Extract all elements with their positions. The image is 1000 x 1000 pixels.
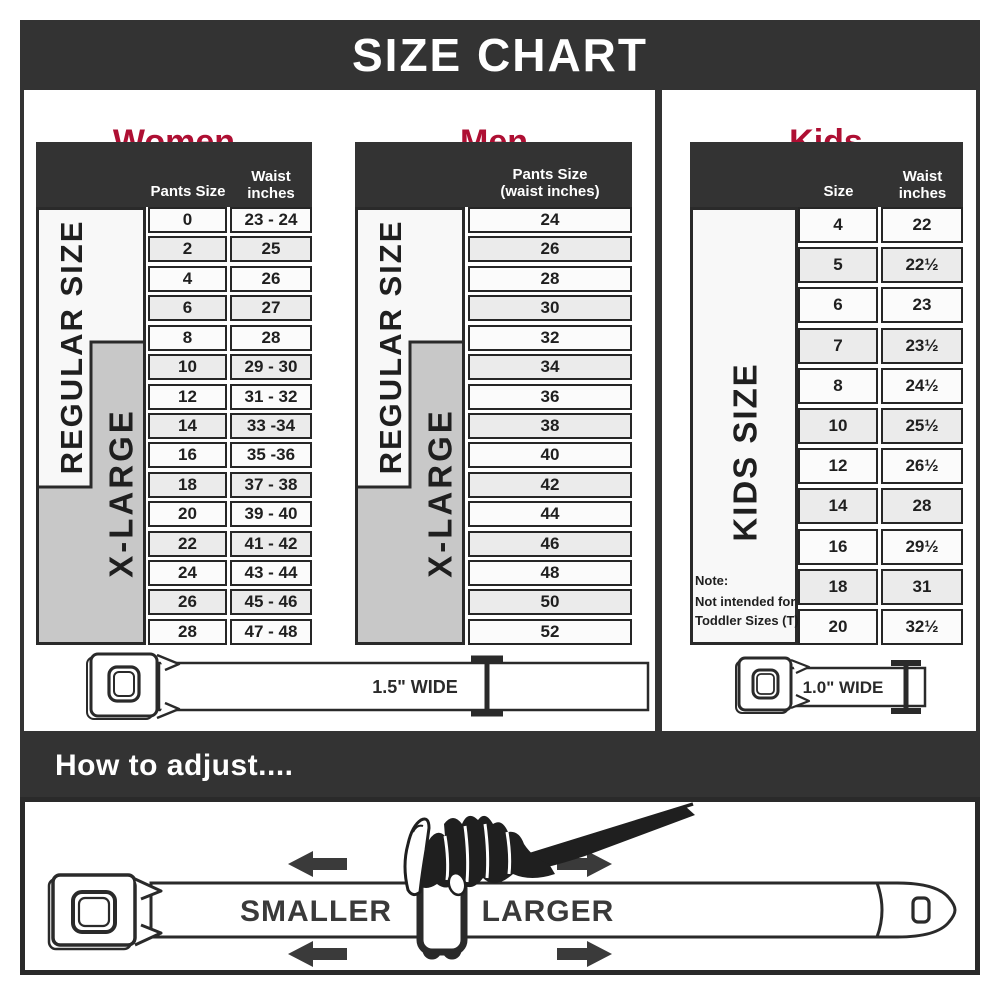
table-cell: 30	[468, 295, 632, 321]
table-row: 1433 -34	[148, 413, 312, 439]
men-table-rows: 242628303234363840424446485052	[468, 207, 632, 645]
table-row: 34	[468, 354, 632, 380]
table-row: 623	[798, 287, 963, 323]
table-row: 426	[148, 266, 312, 292]
how-to-adjust-bar: How to adjust....	[20, 735, 980, 797]
table-cell: 18	[798, 569, 878, 605]
table-cell: 37 - 38	[230, 472, 312, 498]
adjust-illustration-box: SMALLER LARGER	[20, 797, 980, 975]
table-row: 38	[468, 413, 632, 439]
kids-col-size: Size	[798, 183, 879, 200]
table-row: 1837 - 38	[148, 472, 312, 498]
table-row: 36	[468, 384, 632, 410]
table-cell: 22	[148, 531, 227, 557]
women-table-rows: 023 - 242254266278281029 - 301231 - 3214…	[148, 207, 312, 645]
table-row: 46	[468, 531, 632, 557]
table-cell: 31 - 32	[230, 384, 312, 410]
left-arrow-top	[288, 851, 347, 877]
xlarge-label: X-LARGE	[103, 408, 140, 578]
how-to-adjust-heading: How to adjust....	[55, 749, 294, 783]
table-cell: 16	[148, 442, 227, 468]
table-cell: 41 - 42	[230, 531, 312, 557]
kids-belt-illustration: 1.0" WIDE	[725, 650, 965, 724]
table-cell: 10	[798, 408, 878, 444]
kids-size-group-labels: KIDS SIZE Note: Not intended for Toddler…	[690, 207, 798, 645]
table-row: 422	[798, 207, 963, 243]
adult-belt-illustration: 1.5" WIDE	[85, 648, 660, 723]
kids-table-rows: 422522½623723½824½1025½1226½14281629½183…	[798, 207, 963, 645]
men-col-pants-size: Pants Size (waist inches)	[468, 166, 632, 201]
regular-size-label: REGULAR SIZE	[373, 220, 408, 475]
table-cell: 32½	[881, 609, 963, 645]
table-cell: 33 -34	[230, 413, 312, 439]
kids-table-header: Size Waist inches	[690, 142, 963, 207]
table-cell: 23½	[881, 328, 963, 364]
table-cell: 4	[798, 207, 878, 243]
table-cell: 22½	[881, 247, 963, 283]
table-cell: 28	[148, 619, 227, 645]
table-row: 522½	[798, 247, 963, 283]
table-row: 2645 - 46	[148, 589, 312, 615]
table-row: 40	[468, 442, 632, 468]
table-cell: 25	[230, 236, 312, 262]
size-chart-page: SIZE CHART Women Men Kids Pants Size Wai…	[0, 0, 1000, 1000]
table-row: 26	[468, 236, 632, 262]
women-size-group-labels: REGULAR SIZE X-LARGE	[36, 207, 146, 645]
table-cell: 25½	[881, 408, 963, 444]
table-cell: 45 - 46	[230, 589, 312, 615]
table-cell: 14	[798, 488, 878, 524]
table-row: 627	[148, 295, 312, 321]
table-row: 1629½	[798, 529, 963, 565]
table-row: 2032½	[798, 609, 963, 645]
table-cell: 18	[148, 472, 227, 498]
page-title: SIZE CHART	[352, 28, 648, 82]
svg-text:Toddler Sizes (T): Toddler Sizes (T)	[695, 613, 799, 628]
larger-label: LARGER	[482, 895, 615, 928]
svg-text:Not intended for: Not intended for	[695, 594, 795, 609]
title-banner: SIZE CHART	[20, 20, 980, 90]
table-row: 52	[468, 619, 632, 645]
men-size-group-labels: REGULAR SIZE X-LARGE	[355, 207, 465, 645]
table-row: 42	[468, 472, 632, 498]
table-cell: 28	[881, 488, 963, 524]
regular-size-label: REGULAR SIZE	[54, 220, 89, 475]
table-cell: 52	[468, 619, 632, 645]
xlarge-label: X-LARGE	[422, 408, 459, 578]
table-row: 824½	[798, 368, 963, 404]
table-row: 023 - 24	[148, 207, 312, 233]
smaller-label: SMALLER	[240, 895, 392, 928]
women-col-waist: Waist inches	[230, 168, 312, 203]
table-cell: 6	[798, 287, 878, 323]
table-cell: 29 - 30	[230, 354, 312, 380]
table-cell: 14	[148, 413, 227, 439]
men-table-header: Pants Size (waist inches)	[355, 142, 632, 207]
table-cell: 20	[798, 609, 878, 645]
table-cell: 6	[148, 295, 227, 321]
table-cell: 8	[148, 325, 227, 351]
table-cell: 26	[230, 266, 312, 292]
table-cell: 32	[468, 325, 632, 351]
table-cell: 26½	[881, 448, 963, 484]
table-cell: 50	[468, 589, 632, 615]
table-cell: 43 - 44	[230, 560, 312, 586]
table-cell: 23 - 24	[230, 207, 312, 233]
table-cell: 12	[148, 384, 227, 410]
table-row: 2443 - 44	[148, 560, 312, 586]
table-row: 50	[468, 589, 632, 615]
table-cell: 48	[468, 560, 632, 586]
table-cell: 7	[798, 328, 878, 364]
left-arrow-bottom	[288, 941, 347, 967]
table-cell: 47 - 48	[230, 619, 312, 645]
table-cell: 29½	[881, 529, 963, 565]
table-cell: 36	[468, 384, 632, 410]
table-row: 2039 - 40	[148, 501, 312, 527]
table-cell: 31	[881, 569, 963, 605]
table-row: 1635 -36	[148, 442, 312, 468]
table-cell: 22	[881, 207, 963, 243]
women-table-header: Pants Size Waist inches	[36, 142, 312, 207]
table-cell: 2	[148, 236, 227, 262]
table-cell: 39 - 40	[230, 501, 312, 527]
table-row: 48	[468, 560, 632, 586]
women-col-pants-size: Pants Size	[148, 183, 228, 200]
kids-size-label: KIDS SIZE	[727, 362, 764, 541]
table-row: 1428	[798, 488, 963, 524]
table-cell: 8	[798, 368, 878, 404]
table-cell: 10	[148, 354, 227, 380]
table-cell: 35 -36	[230, 442, 312, 468]
table-row: 1831	[798, 569, 963, 605]
table-row: 32	[468, 325, 632, 351]
table-row: 44	[468, 501, 632, 527]
right-arrow-bottom	[557, 941, 612, 967]
table-cell: 24	[148, 560, 227, 586]
table-row: 1226½	[798, 448, 963, 484]
table-cell: 34	[468, 354, 632, 380]
table-cell: 28	[230, 325, 312, 351]
table-cell: 4	[148, 266, 227, 292]
table-cell: 27	[230, 295, 312, 321]
belt-tip-hole	[913, 898, 929, 922]
table-cell: 26	[148, 589, 227, 615]
table-row: 1029 - 30	[148, 354, 312, 380]
table-cell: 38	[468, 413, 632, 439]
table-cell: 5	[798, 247, 878, 283]
table-row: 24	[468, 207, 632, 233]
table-cell: 28	[468, 266, 632, 292]
table-cell: 26	[468, 236, 632, 262]
table-row: 828	[148, 325, 312, 351]
table-row: 225	[148, 236, 312, 262]
table-row: 2847 - 48	[148, 619, 312, 645]
table-cell: 40	[468, 442, 632, 468]
adjust-illustration: SMALLER LARGER	[25, 802, 975, 970]
table-row: 30	[468, 295, 632, 321]
table-cell: 16	[798, 529, 878, 565]
table-cell: 20	[148, 501, 227, 527]
table-cell: 0	[148, 207, 227, 233]
table-row: 28	[468, 266, 632, 292]
table-row: 2241 - 42	[148, 531, 312, 557]
table-cell: 42	[468, 472, 632, 498]
table-cell: 24	[468, 207, 632, 233]
table-row: 723½	[798, 328, 963, 364]
section-divider	[655, 90, 662, 735]
table-cell: 23	[881, 287, 963, 323]
table-cell: 46	[468, 531, 632, 557]
svg-text:Note:: Note:	[695, 573, 728, 588]
kids-belt-width-label: 1.0" WIDE	[803, 678, 884, 697]
table-cell: 44	[468, 501, 632, 527]
table-row: 1025½	[798, 408, 963, 444]
table-cell: 12	[798, 448, 878, 484]
adult-belt-width-label: 1.5" WIDE	[372, 677, 458, 697]
kids-col-waist: Waist inches	[882, 168, 963, 203]
table-cell: 24½	[881, 368, 963, 404]
table-row: 1231 - 32	[148, 384, 312, 410]
